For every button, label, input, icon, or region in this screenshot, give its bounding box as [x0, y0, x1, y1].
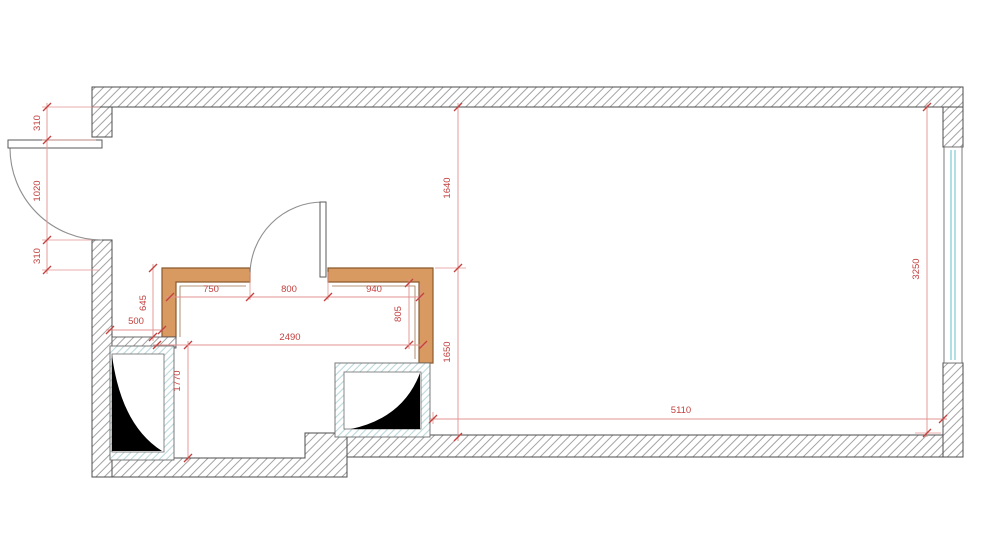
dim-label: 310 [32, 115, 43, 131]
dim-label: 5110 [671, 405, 691, 416]
dim-label: 3250 [911, 258, 922, 279]
bottom-wall-right [347, 435, 963, 457]
dim-wall-to-partition: 500 [106, 316, 166, 334]
dim-partition-left-height: 645 [138, 264, 157, 341]
right-wall-upper [943, 107, 963, 147]
window-frame [944, 147, 962, 363]
dim-room-bottom-width: 5110 [429, 405, 947, 424]
dim-label: 1650 [442, 341, 453, 362]
partition-wall-right [328, 268, 433, 363]
bathroom-door [250, 202, 326, 277]
dim-right-wall: 3250 [911, 103, 941, 437]
dim-entry-left: 310 1020 310 [32, 103, 100, 274]
right-wall-lower [943, 363, 963, 457]
dim-label: 940 [366, 284, 382, 295]
dim-bath-depth: 1770 [172, 341, 192, 462]
partition-wall-left [162, 268, 250, 337]
floor-plan-canvas: 310 1020 310 1640 1650 3250 645 [0, 0, 1000, 545]
dim-label: 645 [138, 295, 149, 311]
bathroom-door-leaf [320, 202, 326, 277]
dim-label: 1640 [442, 177, 453, 198]
dim-label: 800 [281, 284, 297, 295]
dim-label: 805 [393, 306, 404, 322]
window [944, 147, 962, 363]
dim-label: 1770 [172, 370, 183, 391]
entrance-door-leaf [8, 140, 102, 148]
shaft-middle [335, 363, 430, 437]
dim-bath-right-inner: 805 [393, 279, 413, 349]
dim-label: 500 [128, 316, 144, 327]
dim-bath-width: 2490 [153, 332, 427, 349]
left-wall-lower [92, 240, 112, 477]
dim-label: 750 [203, 284, 219, 295]
entrance-door-swing-arc [10, 148, 102, 240]
dim-label: 2490 [279, 332, 300, 343]
floor-plan-drawing: 310 1020 310 1640 1650 3250 645 [0, 0, 1000, 545]
bathroom-door-swing-arc [250, 202, 323, 275]
entrance-door [8, 140, 102, 240]
dim-label: 1020 [32, 180, 43, 201]
dim-label: 310 [32, 248, 43, 264]
shaft-left [110, 346, 174, 460]
top-wall [92, 87, 963, 107]
dim-center-vertical: 1640 1650 [435, 103, 466, 441]
left-wall-upper-stub [92, 107, 112, 137]
